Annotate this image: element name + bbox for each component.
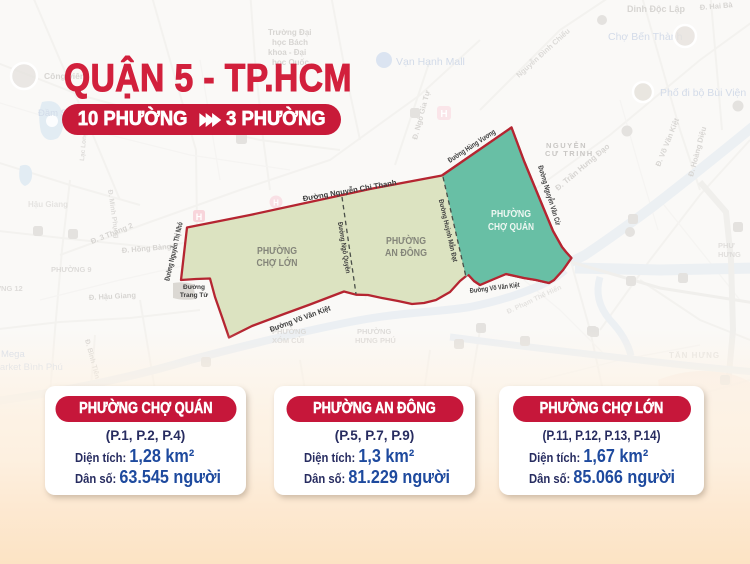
svg-text:CHỢ LỚN: CHỢ LỚN	[257, 256, 298, 269]
svg-text:PHƯỜNG: PHƯỜNG	[386, 234, 426, 247]
svg-text:PHƯỜNG: PHƯỜNG	[491, 207, 531, 220]
svg-text:CHỢ QUÁN: CHỢ QUÁN	[488, 220, 534, 233]
svg-text:AN ĐÔNG: AN ĐÔNG	[385, 246, 427, 259]
svg-text:PHƯỜNG: PHƯỜNG	[257, 244, 297, 257]
svg-text:Đường: Đường	[183, 284, 205, 291]
svg-text:Trang Tử: Trang Tử	[180, 292, 208, 299]
